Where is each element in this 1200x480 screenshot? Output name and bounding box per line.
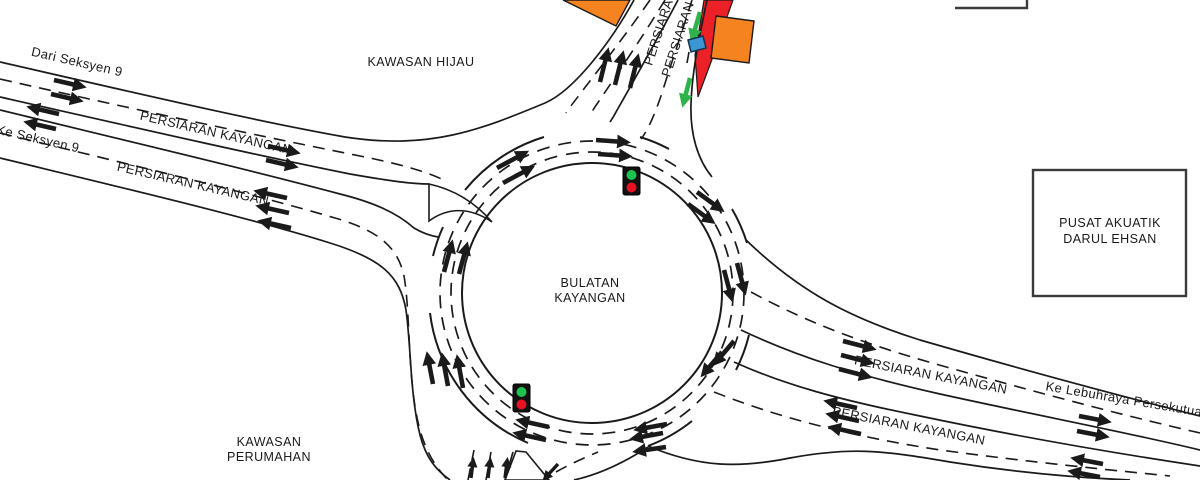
- label-persiaran-kayangan-west-out: PERSIARAN KAYANGAN: [116, 159, 271, 209]
- green-arrow-south-2: [684, 78, 690, 101]
- signal-green-lamp: [517, 387, 527, 397]
- junction-diagram: Dari Seksyen 9 Ke Seksyen 9 PERSIARAN KA…: [0, 0, 1200, 480]
- map-frame-fragment: [955, 0, 1027, 8]
- traffic-light-south-west: [513, 384, 530, 412]
- building-orange-left: [563, 0, 630, 26]
- label-pusat-akuatik-line2: DARUL EHSAN: [1063, 232, 1156, 246]
- road-east: [648, 240, 1200, 480]
- signal-green-lamp: [627, 170, 637, 180]
- label-kawasan-hijau: KAWASAN HIJAU: [367, 55, 474, 69]
- signal-red-lamp: [627, 183, 637, 193]
- signal-red-lamp: [517, 400, 527, 410]
- road-north: [566, 0, 712, 177]
- labels: Dari Seksyen 9 Ke Seksyen 9 PERSIARAN KA…: [0, 0, 1200, 464]
- road-south: [468, 447, 648, 480]
- label-pusat-akuatik-line1: PUSAT AKUATIK: [1059, 216, 1161, 230]
- label-bulatan-line2: KAYANGAN: [554, 291, 625, 305]
- label-kawasan-perumahan-line1: KAWASAN: [237, 435, 302, 449]
- traffic-light-north-east: [623, 167, 640, 195]
- building-orange-right: [711, 16, 754, 63]
- label-dari-seksyen-9: Dari Seksyen 9: [30, 44, 124, 80]
- traffic-arrows: [30, 54, 1105, 478]
- diagram-canvas: Dari Seksyen 9 Ke Seksyen 9 PERSIARAN KA…: [0, 0, 1200, 480]
- label-bulatan-line1: BULATAN: [561, 276, 620, 290]
- label-kawasan-perumahan-line2: PERUMAHAN: [227, 450, 311, 464]
- flag-pole: [687, 52, 689, 63]
